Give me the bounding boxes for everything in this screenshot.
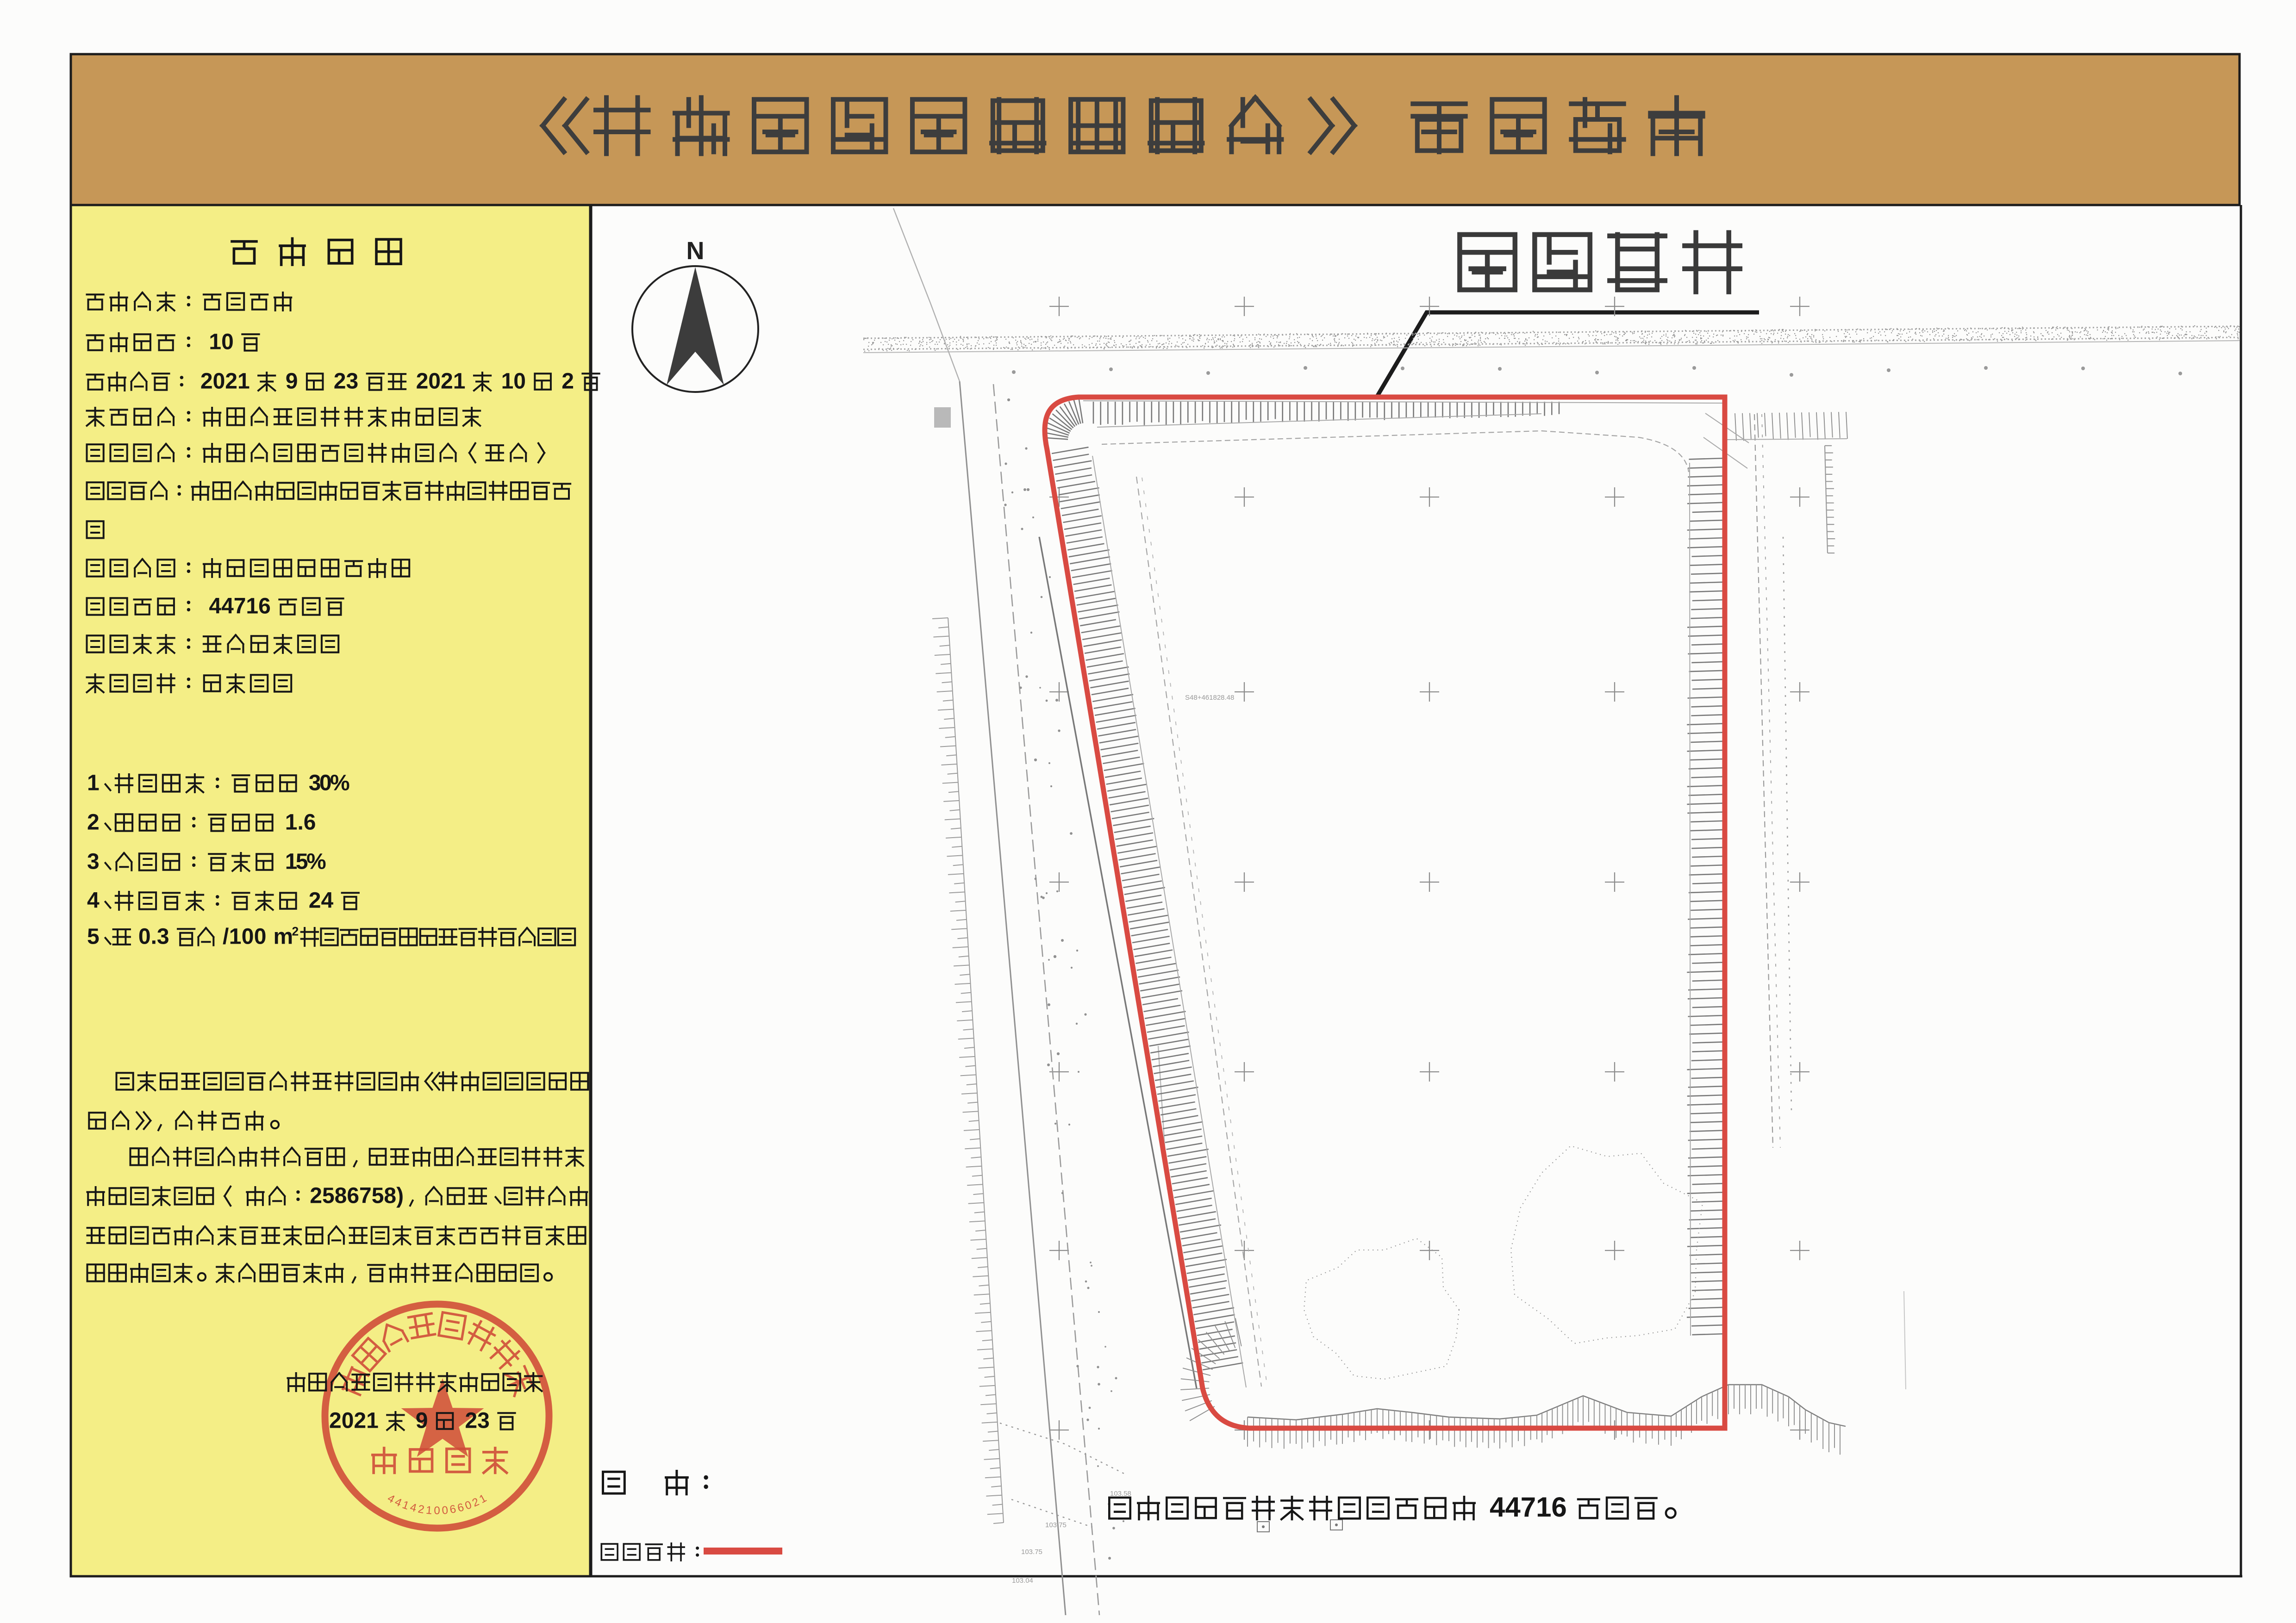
svg-text:/100: /100 [223,924,267,949]
svg-text:1: 1 [87,771,100,795]
svg-text:m: m [274,924,293,949]
svg-text:103.75: 103.75 [1021,1548,1042,1556]
svg-text:15%: 15% [285,849,326,874]
svg-text:103.75: 103.75 [1045,1521,1067,1529]
svg-text:10: 10 [501,369,526,393]
svg-text:9: 9 [286,369,298,393]
svg-text:44716: 44716 [209,594,270,618]
svg-text:2021: 2021 [200,369,250,393]
svg-text:N: N [686,237,705,265]
svg-text:23: 23 [334,369,358,393]
svg-text:1: 1 [425,1504,433,1517]
svg-text:0: 0 [434,1505,440,1517]
svg-text:1.6: 1.6 [285,810,316,834]
svg-text:3: 3 [87,849,100,874]
svg-text:2021: 2021 [329,1408,379,1433]
svg-text:2586758): 2586758) [310,1183,404,1208]
svg-text:5: 5 [87,924,100,949]
svg-text:2: 2 [87,810,100,834]
svg-text:9: 9 [416,1408,428,1433]
svg-text:4: 4 [87,888,100,913]
svg-text:10: 10 [209,330,233,354]
svg-text:103.58: 103.58 [1110,1490,1131,1498]
svg-text:2: 2 [292,925,299,939]
svg-text:24: 24 [309,888,334,913]
svg-text:0.3: 0.3 [138,924,169,949]
svg-text:44716: 44716 [1490,1492,1567,1523]
svg-text:0: 0 [441,1504,449,1517]
svg-text:S48+461828.48: S48+461828.48 [1185,694,1234,702]
svg-text:2021: 2021 [416,369,466,393]
svg-text:103.04: 103.04 [1012,1577,1033,1585]
svg-text:30%: 30% [309,771,350,795]
svg-text:2: 2 [562,369,574,393]
svg-text:23: 23 [465,1408,489,1433]
